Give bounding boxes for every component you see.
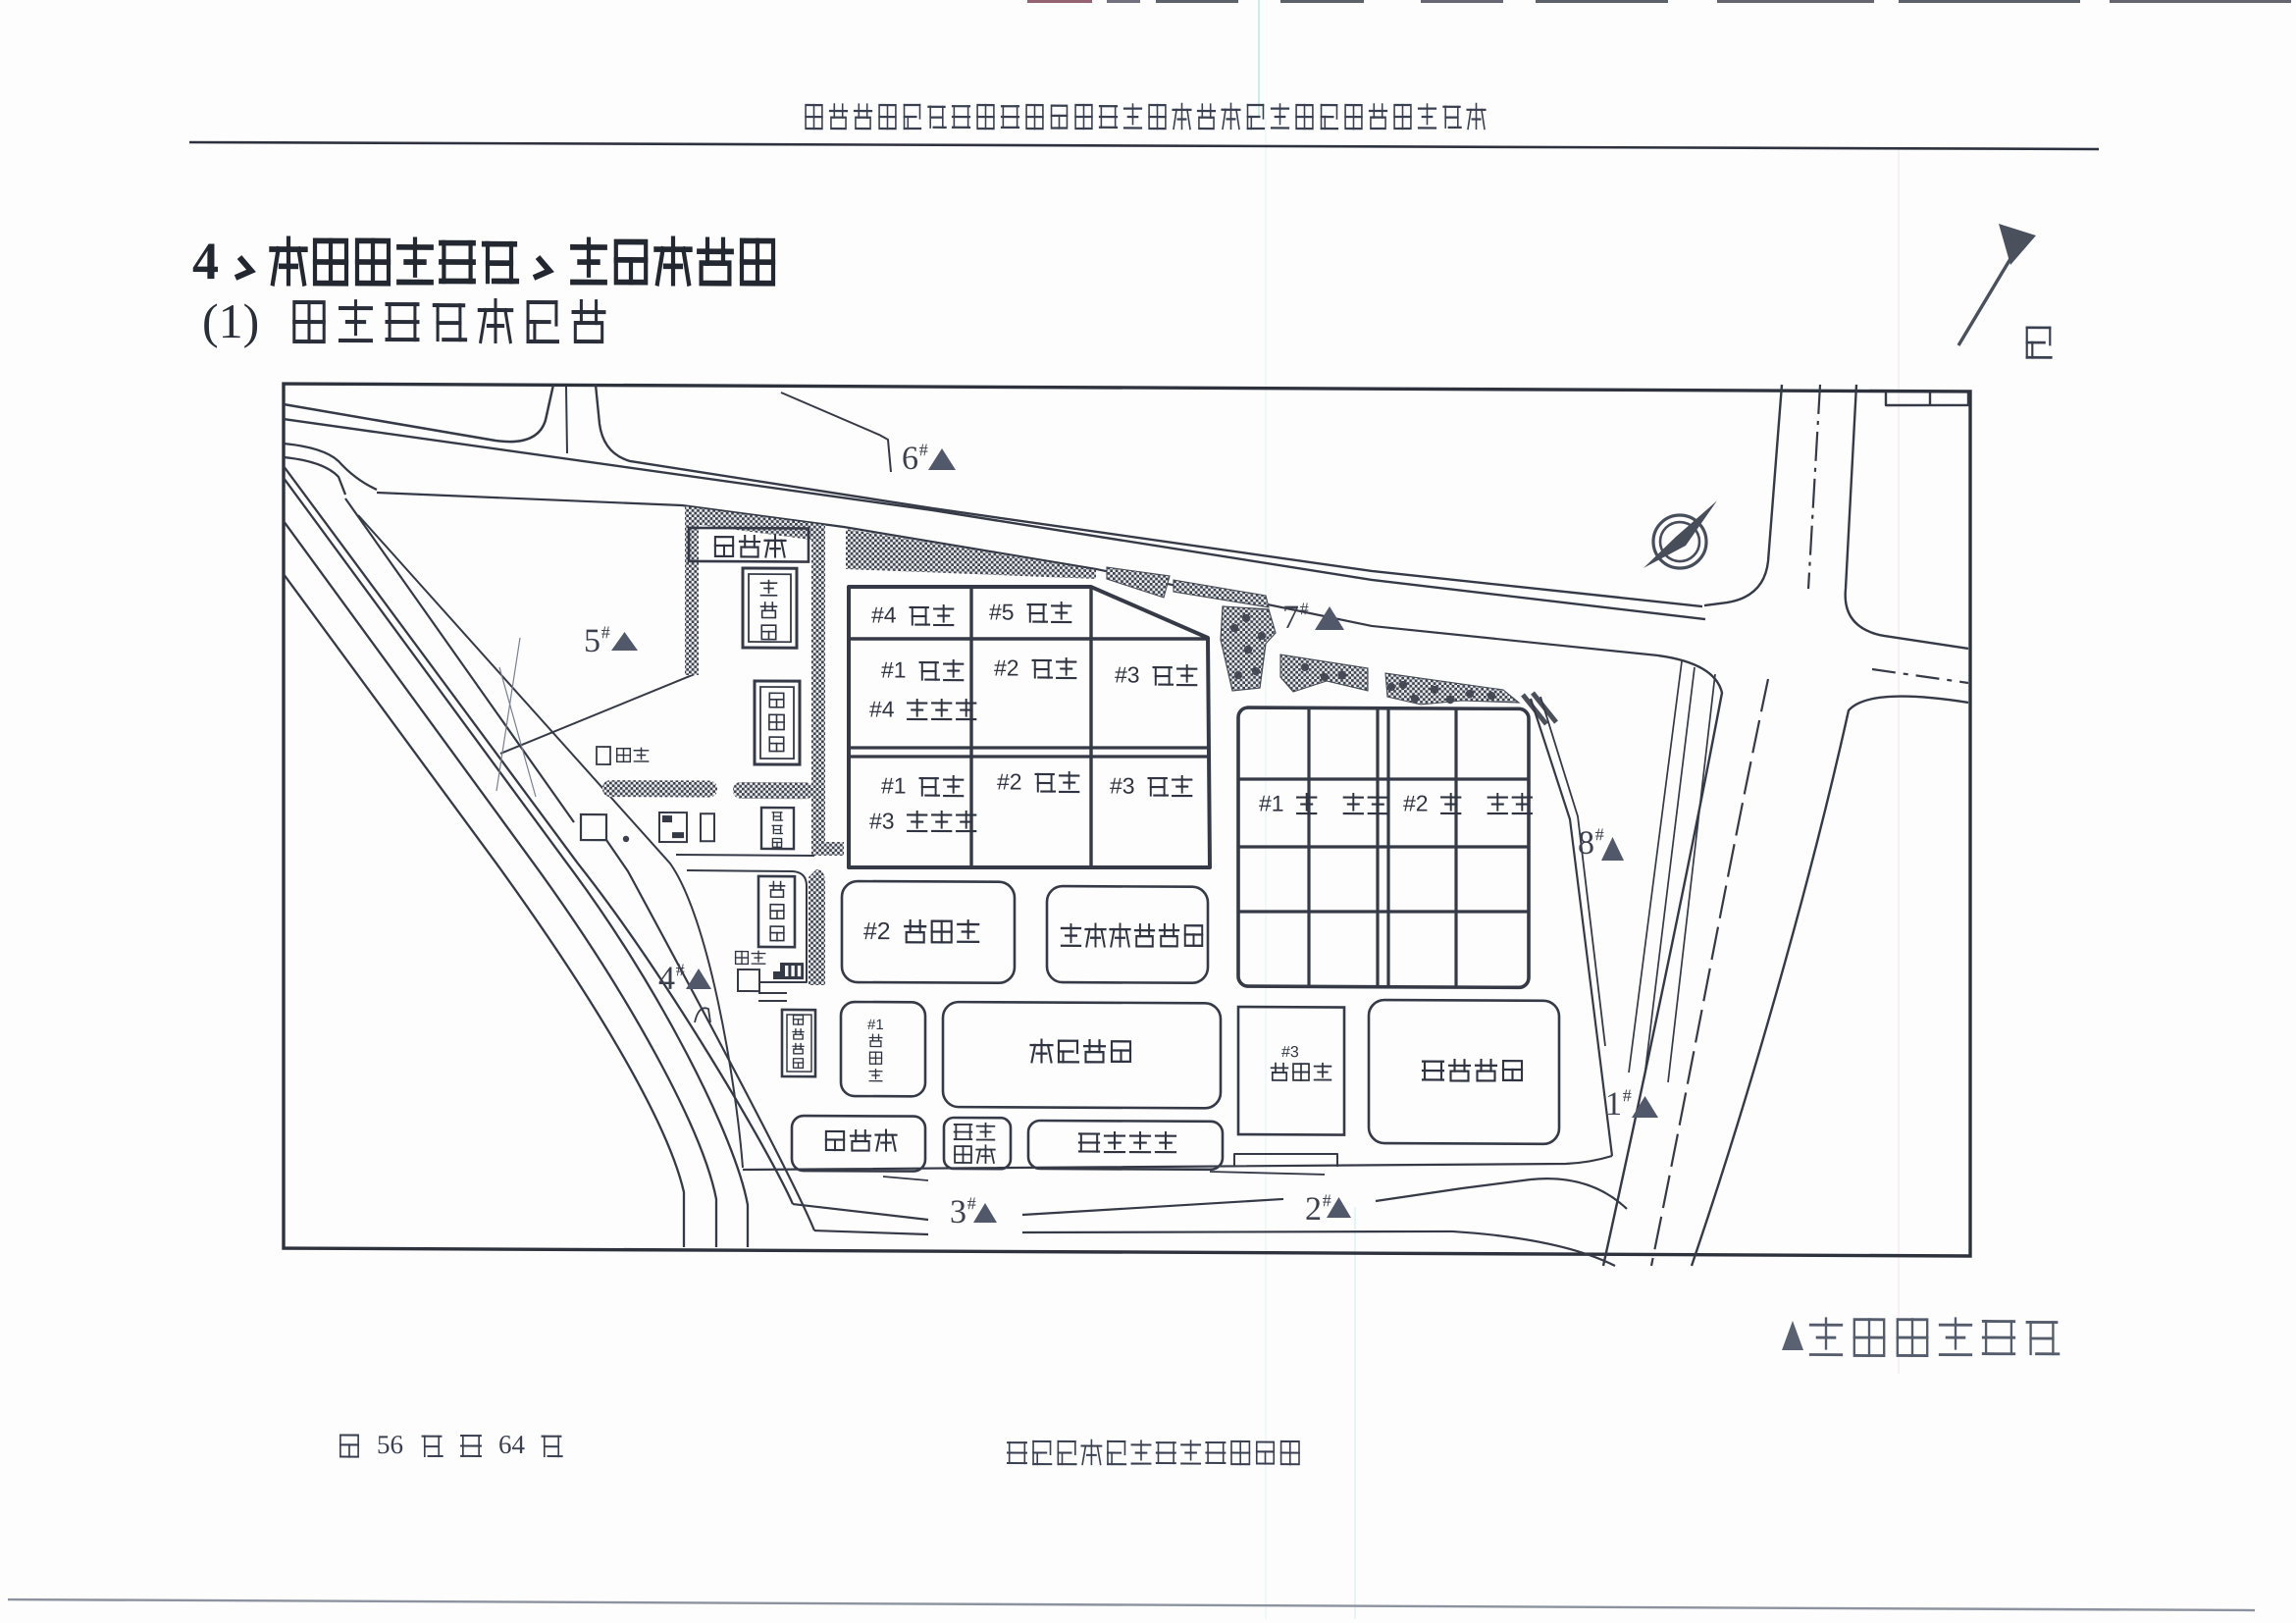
svg-text:#2: #2 [863, 918, 891, 945]
svg-text:6: 6 [902, 441, 918, 477]
svg-text:5: 5 [584, 623, 600, 659]
svg-text:#2: #2 [994, 654, 1019, 680]
svg-text:#: # [1323, 1190, 1331, 1210]
svg-text:1: 1 [1605, 1086, 1622, 1123]
svg-text:8: 8 [1578, 825, 1594, 862]
svg-text:#: # [967, 1193, 976, 1213]
svg-text:3: 3 [950, 1194, 966, 1230]
svg-text:#3: #3 [1115, 661, 1140, 687]
svg-text:2: 2 [1305, 1191, 1322, 1228]
svg-text:#4: #4 [869, 696, 895, 721]
svg-text:#1: #1 [1259, 791, 1284, 816]
svg-text:#3: #3 [869, 808, 895, 833]
svg-text:4: 4 [192, 232, 219, 290]
svg-text:#1: #1 [867, 1017, 884, 1033]
svg-text:7: 7 [1282, 600, 1299, 636]
svg-text:#3: #3 [1110, 773, 1135, 799]
svg-text:#3: #3 [1281, 1044, 1299, 1061]
svg-text:#1: #1 [881, 656, 907, 682]
svg-text:4: 4 [658, 961, 675, 997]
svg-text:(1): (1) [202, 293, 259, 348]
svg-text:#: # [1595, 824, 1604, 844]
svg-text:#1: #1 [881, 772, 907, 798]
svg-text:#: # [676, 960, 685, 979]
svg-text:#: # [1623, 1085, 1632, 1105]
svg-text:#5: #5 [989, 599, 1015, 624]
svg-text:56: 56 [377, 1430, 403, 1459]
svg-text:64: 64 [498, 1430, 525, 1459]
svg-text:#2: #2 [997, 768, 1022, 794]
svg-text:#2: #2 [1403, 791, 1429, 816]
svg-text:#: # [919, 440, 928, 459]
svg-text:#4: #4 [871, 602, 897, 628]
svg-text:#: # [1300, 599, 1309, 618]
svg-text:#: # [601, 622, 610, 642]
